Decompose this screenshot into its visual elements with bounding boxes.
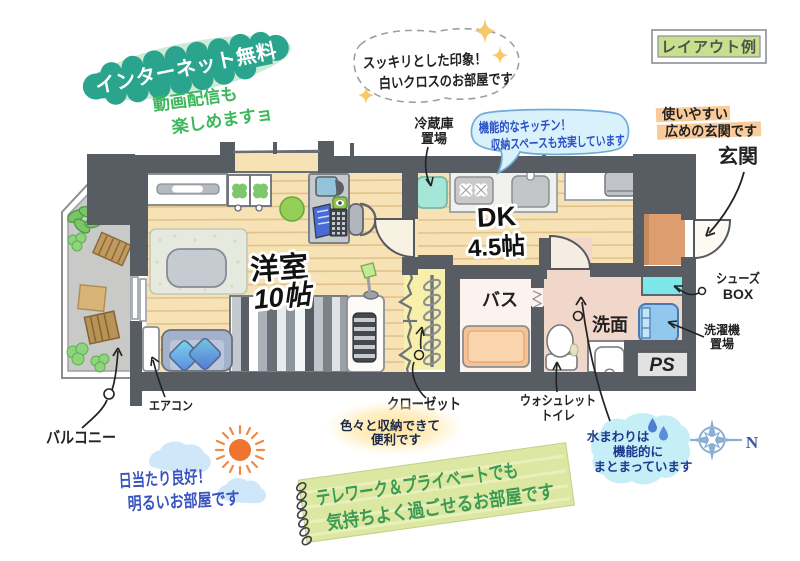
- svg-text:冷蔵庫: 冷蔵庫: [414, 116, 453, 131]
- svg-text:広めの玄関です: 広めの玄関です: [665, 123, 757, 139]
- svg-text:バス: バス: [482, 290, 518, 310]
- svg-text:10帖: 10帖: [252, 279, 316, 315]
- svg-text:機能的に: 機能的に: [613, 444, 663, 459]
- svg-text:エアコン: エアコン: [149, 399, 193, 413]
- svg-text:洗面: 洗面: [592, 314, 628, 335]
- svg-text:便利です: 便利です: [371, 432, 421, 447]
- svg-text:機能的なキッチン！: 機能的なキッチン！: [479, 116, 572, 135]
- svg-text:N: N: [746, 433, 759, 452]
- svg-text:使いやすい: 使いやすい: [661, 106, 728, 122]
- svg-text:まとまっています: まとまっています: [594, 460, 693, 474]
- svg-text:BOX: BOX: [723, 286, 754, 302]
- svg-text:置場: 置場: [710, 336, 734, 351]
- svg-text:トイレ: トイレ: [541, 408, 575, 423]
- svg-text:玄関: 玄関: [718, 144, 758, 168]
- svg-text:シューズ: シューズ: [716, 271, 760, 286]
- svg-text:色々と収納できて: 色々と収納できて: [340, 418, 440, 433]
- svg-text:置場: 置場: [421, 131, 447, 146]
- svg-text:DK: DK: [476, 201, 517, 233]
- svg-text:バルコニー: バルコニー: [46, 429, 116, 447]
- svg-text:ウォシュレット: ウォシュレット: [520, 393, 596, 408]
- svg-text:水まわりは: 水まわりは: [587, 429, 650, 444]
- svg-text:PS: PS: [649, 355, 675, 376]
- svg-text:レイアウト例: レイアウト例: [661, 38, 757, 56]
- svg-text:洗濯機: 洗濯機: [704, 322, 740, 337]
- svg-text:4.5帖: 4.5帖: [467, 233, 526, 263]
